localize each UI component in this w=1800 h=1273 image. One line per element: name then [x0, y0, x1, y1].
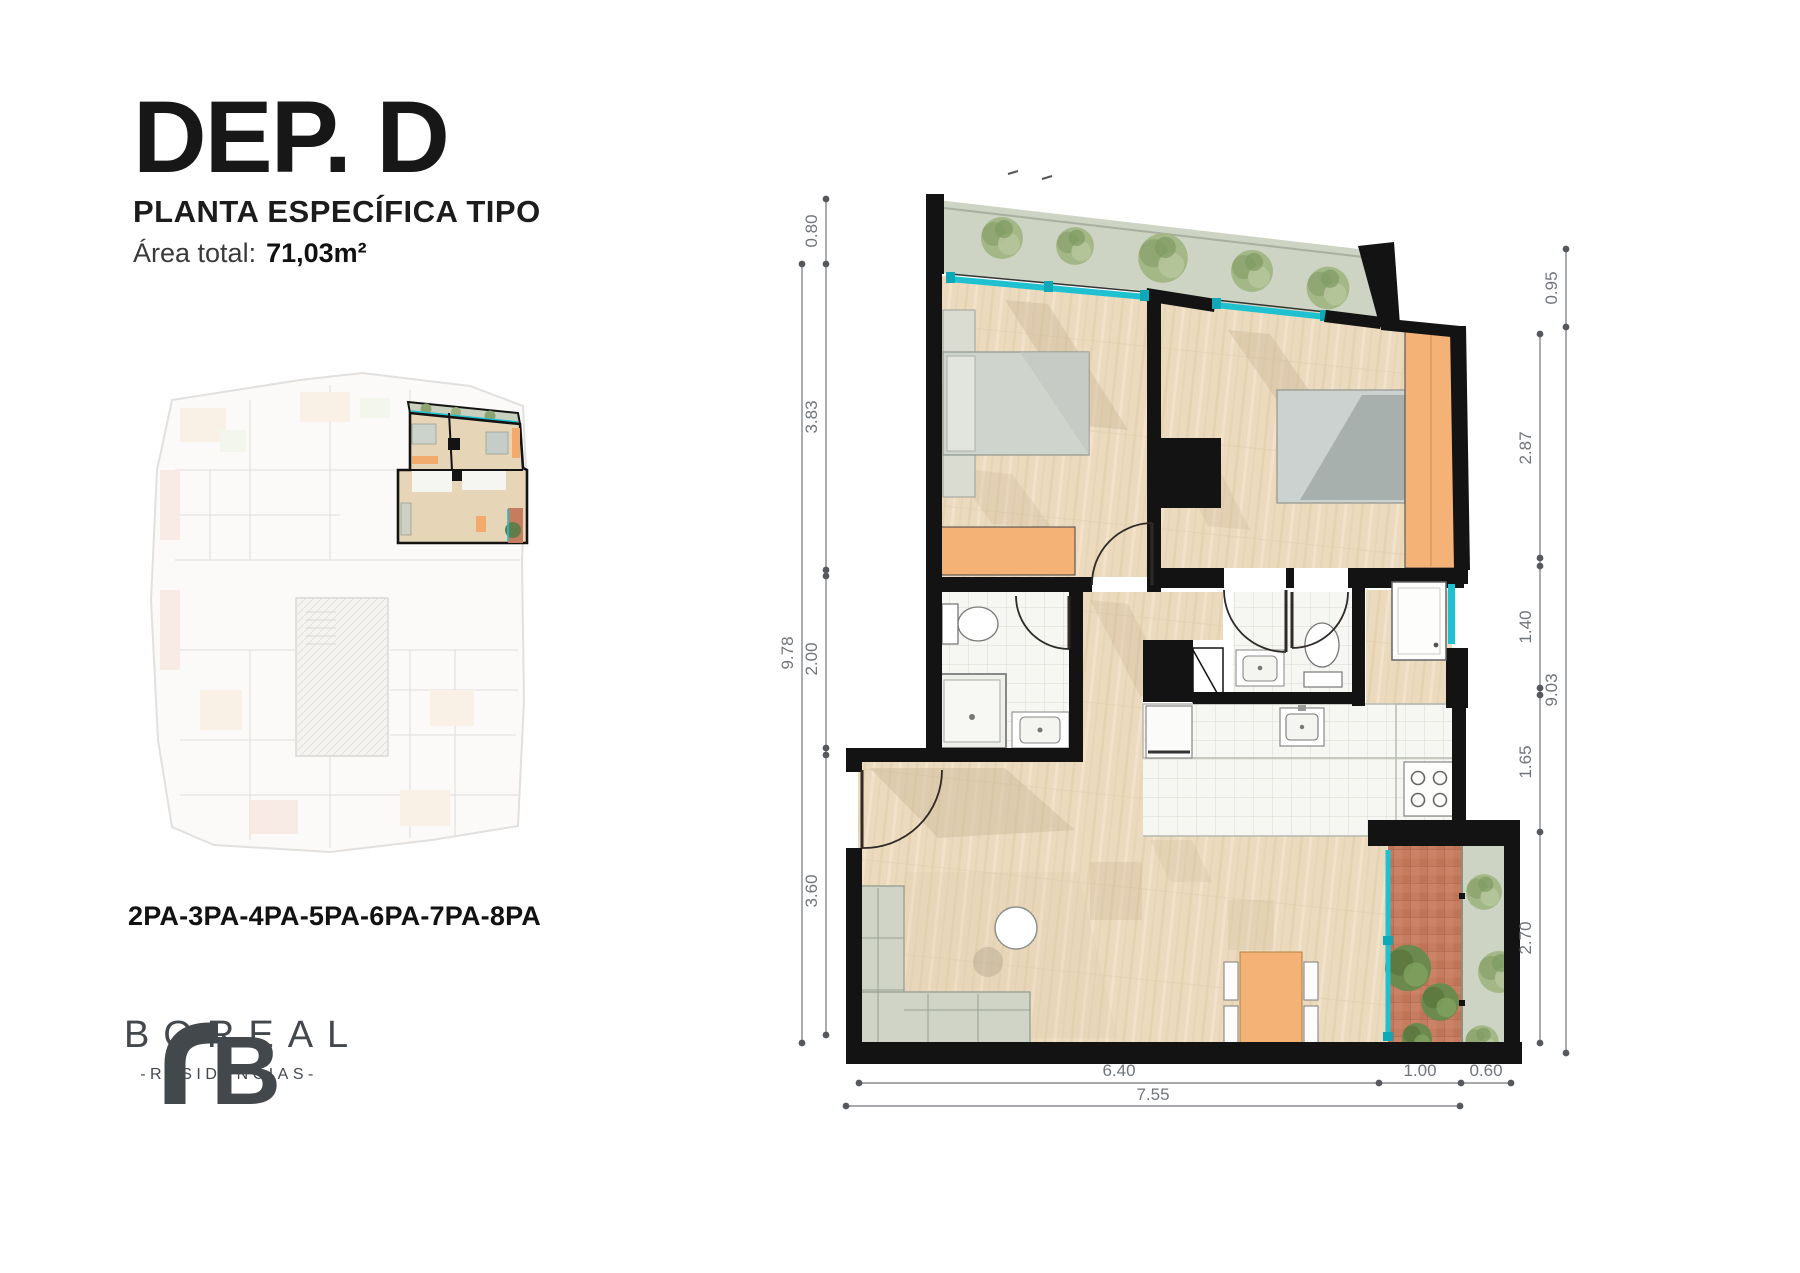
toilet-1-bowl — [958, 607, 998, 641]
page-subtitle: PLANTA ESPECÍFICA TIPO — [133, 194, 541, 230]
toilet-1-tank — [942, 604, 958, 644]
entry-sidelight-glass — [1448, 584, 1455, 644]
dim-label: 7.55 — [1136, 1085, 1169, 1104]
dim-label: 9.03 — [1542, 673, 1561, 706]
area-label: Área total: — [133, 238, 256, 269]
dining-chair — [1304, 962, 1318, 1000]
overview-highlight-unit — [398, 402, 527, 543]
area-total: Área total: 71,03m² — [133, 238, 541, 269]
dim-label: 2.00 — [802, 642, 821, 675]
wall — [926, 194, 944, 274]
monogram-letter: B — [211, 1016, 281, 1107]
dining-chair — [1224, 962, 1238, 1000]
brand-monogram-icon: B — [112, 1012, 342, 1107]
sofa-horizontal — [860, 992, 1030, 1044]
area-value: 71,03m² — [266, 238, 367, 269]
dining-chair — [1224, 1006, 1238, 1044]
floor-plan: 0.80 3.83 2.00 3.60 9.78 2.87 1.40 1.65 … — [770, 30, 1590, 1160]
brand-logo: B BOREAL -RESIDENCIAS- — [112, 1012, 342, 1084]
survey-ticks — [1008, 171, 1052, 179]
balcony — [1385, 846, 1520, 1059]
fridge — [1146, 706, 1192, 758]
main-entry-door — [1392, 582, 1455, 660]
overview-plan — [120, 350, 540, 880]
closet-block — [1149, 438, 1221, 508]
dim-label: 0.80 — [802, 214, 821, 247]
dim-label: 0.60 — [1469, 1061, 1502, 1080]
dim-label: 1.00 — [1403, 1061, 1436, 1080]
dim-label: 3.60 — [802, 874, 821, 907]
dim-label: 9.78 — [778, 636, 797, 669]
dim-label: 1.40 — [1516, 610, 1535, 643]
dresser-1 — [941, 527, 1075, 575]
dim-label: 6.40 — [1102, 1061, 1135, 1080]
dim-label: 2.87 — [1516, 431, 1535, 464]
dim-label: 2.70 — [1516, 921, 1535, 954]
dim-label: 1.65 — [1516, 745, 1535, 778]
page-title: DEP. D — [133, 86, 541, 188]
header: DEP. D PLANTA ESPECÍFICA TIPO Área total… — [133, 86, 541, 269]
unit-levels-label: 2PA-3PA-4PA-5PA-6PA-7PA-8PA — [128, 901, 541, 932]
side-table — [995, 907, 1037, 949]
dining-chair — [1304, 1006, 1318, 1044]
shaft-block — [1143, 640, 1193, 702]
stove — [1404, 762, 1454, 816]
dim-label: 3.83 — [802, 400, 821, 433]
toilet-2-tank — [1304, 672, 1342, 687]
dining-table — [1240, 952, 1302, 1048]
dim-label: 0.95 — [1542, 271, 1561, 304]
